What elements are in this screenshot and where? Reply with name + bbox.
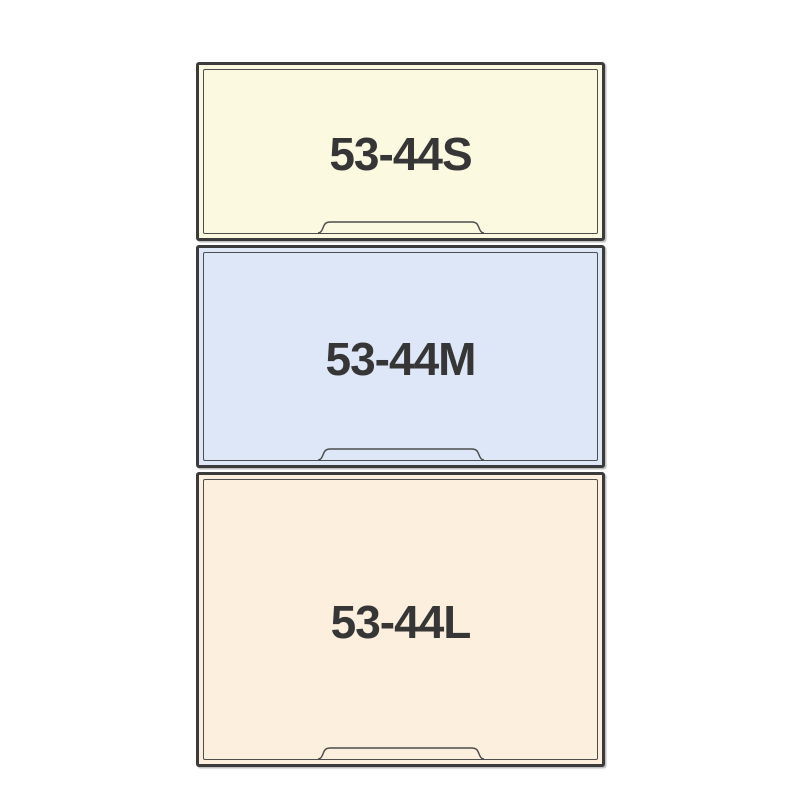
drawer-panel-53-44m[interactable]: 53-44M <box>196 245 605 468</box>
drawer-panel-53-44l[interactable]: 53-44L <box>196 472 605 767</box>
drawer-stack-diagram: 53-44S 53-44M 53-44L <box>196 62 605 767</box>
drawer-handle-icon <box>318 221 484 233</box>
drawer-label: 53-44S <box>329 127 471 177</box>
drawer-handle-icon <box>318 747 484 759</box>
drawer-handle-outline <box>318 222 484 233</box>
drawer-handle-outline <box>318 449 484 460</box>
drawer-handle-icon <box>318 448 484 460</box>
drawer-panel-inner-frame: 53-44M <box>203 252 598 461</box>
drawer-label: 53-44L <box>331 595 471 645</box>
drawer-handle-outline <box>318 748 484 759</box>
drawer-panel-53-44s[interactable]: 53-44S <box>196 62 605 241</box>
drawer-panel-inner-frame: 53-44S <box>203 69 598 234</box>
drawer-panel-inner-frame: 53-44L <box>203 479 598 760</box>
drawer-label: 53-44M <box>326 332 476 382</box>
